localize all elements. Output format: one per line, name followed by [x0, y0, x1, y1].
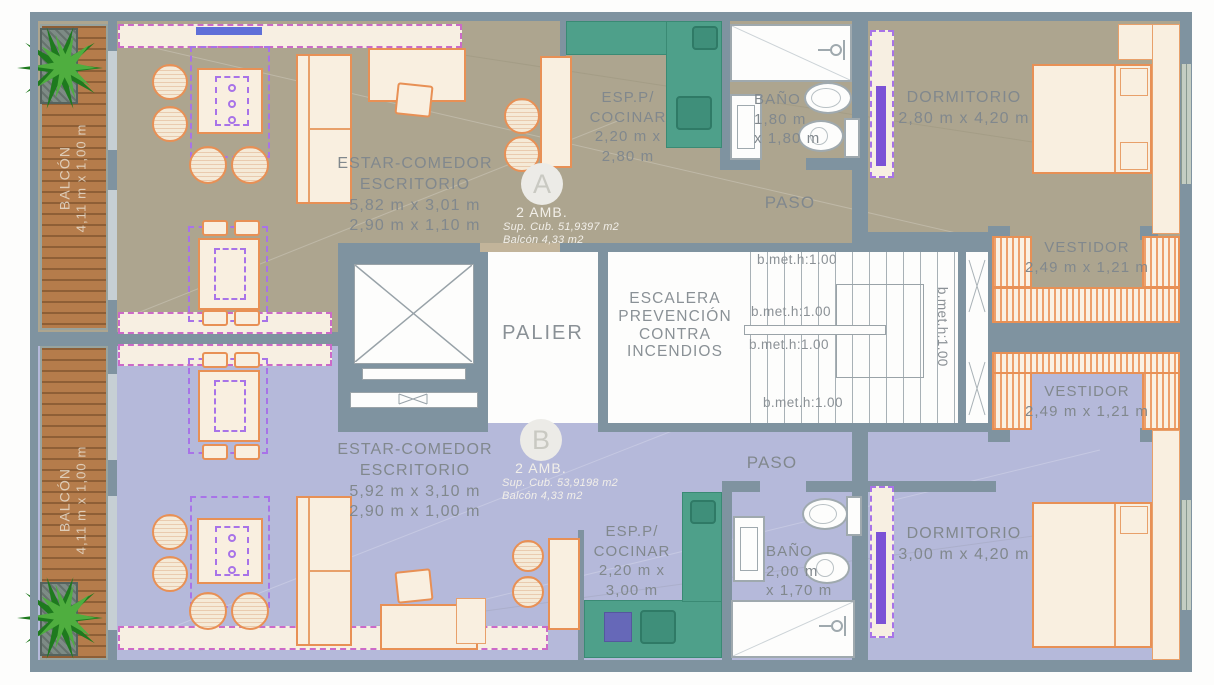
chair — [234, 352, 260, 368]
table-dot — [228, 84, 236, 92]
room-name: ESP.P/ — [572, 88, 684, 108]
bed-line — [1114, 66, 1116, 172]
room-dim: 2,20 m x — [582, 561, 682, 581]
duct — [350, 392, 478, 408]
room-dim: 3,00 m x 4,20 m — [880, 545, 1048, 566]
room-name: ESCRITORIO — [330, 461, 500, 482]
vanity-basin — [740, 527, 758, 571]
room-label-escalera: ESCALERA PREVENCIÓN CONTRA INCENDIOS — [600, 290, 750, 361]
room-label-paso-a: PASO — [750, 192, 830, 214]
window-blue-marker — [196, 27, 262, 35]
wall-segment — [108, 300, 117, 332]
counter-desk-b — [548, 538, 580, 630]
unit-badge-b: B — [520, 419, 562, 461]
room-name: BALCÓN — [55, 446, 73, 555]
bed-line — [1114, 504, 1116, 646]
closet-strip-right-b — [1152, 430, 1180, 660]
table-dot — [228, 550, 236, 558]
side-table-b — [456, 598, 486, 644]
kitchen-sink-a — [692, 26, 718, 50]
wall-segment — [108, 630, 117, 662]
window-right-a — [1181, 64, 1191, 184]
room-dim: 3,00 m — [582, 581, 682, 601]
wall-segment — [108, 150, 117, 190]
pillow — [1120, 68, 1148, 96]
stair-handrail — [744, 325, 886, 335]
room-dim: 2,90 m x 1,10 m — [330, 216, 500, 237]
stool — [512, 540, 544, 572]
table-dot — [228, 100, 236, 108]
unit-type-a: 2 AMB. — [506, 203, 578, 221]
desk-chair-b — [394, 568, 433, 604]
sofa-back — [298, 56, 310, 202]
vanity-b — [733, 516, 765, 582]
elevator-door — [362, 368, 466, 380]
window-right-b — [1181, 500, 1191, 610]
cistern-b — [846, 496, 862, 536]
room-name: DORMITORIO — [880, 524, 1048, 545]
room-dim: 2,49 m x 1,21 m — [1014, 258, 1160, 278]
sofa-cushion-line — [310, 570, 350, 572]
wall-dorm-a-bottom — [866, 232, 996, 243]
table-inner — [214, 248, 246, 300]
stair-door-strip — [966, 252, 988, 423]
wall-outer-top — [30, 12, 1180, 21]
stair-mark-vertical: b.met.h:1.00 — [933, 277, 951, 377]
table-inner — [214, 380, 246, 432]
stair-mark: b.met.h:1.00 — [751, 303, 863, 321]
chair — [152, 556, 188, 592]
room-label-bano-a: BAÑO 1,80 m x 1,80 m — [754, 90, 864, 149]
room-label-palier: PALIER — [496, 320, 590, 346]
room-label-dormitorio-a: DORMITORIO 2,80 m x 4,20 m — [880, 88, 1048, 130]
room-name: COCINAR — [582, 542, 682, 562]
window-balcony-b — [108, 344, 117, 662]
room-name: DORMITORIO — [880, 88, 1048, 109]
counter-desk-a — [540, 56, 572, 168]
toilet-b — [802, 498, 848, 530]
wall-outer-bottom — [30, 660, 1180, 672]
chair — [152, 64, 188, 100]
chair — [152, 514, 188, 550]
kitchen-stove-b — [640, 610, 676, 644]
kitchen-sink-b — [690, 500, 716, 524]
vanity-basin — [737, 105, 755, 149]
room-label-balcon-a: BALCÓN 4,11 m x 1,00 m — [55, 124, 90, 233]
table-dot — [228, 534, 236, 542]
room-name: BAÑO — [766, 542, 876, 562]
kitchen-appliance-b — [604, 612, 632, 642]
duct-bowtie-icon — [351, 393, 475, 405]
room-label-vestidor-b: VESTIDOR 2,49 m x 1,21 m — [1014, 382, 1160, 421]
wall-stairs-right — [958, 252, 966, 423]
room-dim: 2,00 m — [766, 562, 876, 582]
room-name: BALCÓN — [55, 124, 73, 233]
wall-segment — [108, 460, 117, 496]
room-label-estar-b: ESTAR-COMEDOR ESCRITORIO 5,92 m x 3,10 m… — [330, 440, 500, 523]
sofa-cushion-line — [310, 128, 350, 130]
chair — [234, 220, 260, 236]
chair — [152, 106, 188, 142]
room-label-cocina-a: ESP.P/ COCINAR 2,20 m x 2,80 m — [572, 88, 684, 166]
room-dim: 4,11 m x 1,00 m — [74, 446, 91, 555]
chair — [234, 444, 260, 460]
chair — [234, 310, 260, 326]
room-label-estar-a: ESTAR-COMEDOR ESCRITORIO 5,82 m x 3,01 m… — [330, 154, 500, 237]
room-dim: 1,80 m — [754, 110, 864, 130]
wall-segment — [108, 344, 117, 374]
room-name: COCINAR — [572, 108, 684, 128]
room-dim: x 1,80 m — [754, 129, 864, 149]
room-label-bano-b: BAÑO 2,00 m x 1,70 m — [766, 542, 876, 601]
chair — [189, 592, 227, 630]
room-dim: 2,80 m x 4,20 m — [880, 109, 1048, 130]
room-name: PREVENCIÓN — [600, 308, 750, 326]
unit-sup-balcon-a: Balcón 4,33 m2 — [503, 233, 633, 247]
room-name: INCENDIOS — [600, 343, 750, 361]
chair — [202, 220, 228, 236]
room-label-balcon-b: BALCÓN 4,11 m x 1,00 m — [55, 446, 90, 555]
room-name: VESTIDOR — [1014, 238, 1160, 258]
room-dim: 2,90 m x 1,00 m — [330, 502, 500, 523]
unit-type-b: 2 AMB. — [505, 459, 577, 477]
pillow — [1120, 142, 1148, 170]
room-dim: 5,92 m x 3,10 m — [330, 482, 500, 503]
chair — [231, 146, 269, 184]
closet-hatch — [992, 352, 1180, 374]
room-label-cocina-b: ESP.P/ COCINAR 2,20 m x 3,00 m — [582, 522, 682, 600]
chair — [202, 310, 228, 326]
shower-head-icon — [732, 26, 850, 80]
toilet-bowl — [809, 504, 837, 524]
room-label-paso-b: PASO — [732, 452, 812, 474]
stair-mark: b.met.h:1.00 — [763, 394, 875, 412]
room-dim: 2,20 m x — [572, 127, 684, 147]
room-name: VESTIDOR — [1014, 382, 1160, 402]
plant-icon — [14, 22, 106, 114]
shower-b — [731, 600, 855, 658]
pillow — [1120, 506, 1148, 534]
room-name: CONTRA — [600, 326, 750, 344]
stool — [512, 576, 544, 608]
wall-segment — [108, 21, 117, 51]
chair — [189, 146, 227, 184]
room-dim: 5,82 m x 3,01 m — [330, 196, 500, 217]
room-name: ESCALERA — [600, 290, 750, 308]
floor-plan: ESTAR-COMEDOR ESCRITORIO 5,82 m x 3,01 m… — [0, 0, 1214, 685]
room-name: ESTAR-COMEDOR — [330, 154, 500, 175]
chair — [202, 352, 228, 368]
unit-sup-balcon-b: Balcón 4,33 m2 — [502, 489, 632, 503]
sofa-back — [298, 498, 310, 644]
window-band — [118, 24, 462, 48]
room-dim: 2,80 m — [572, 147, 684, 167]
closet-hatch — [992, 287, 1180, 323]
closet-strip-right-a — [1152, 24, 1180, 234]
room-label-dormitorio-b: DORMITORIO 3,00 m x 4,20 m — [880, 524, 1048, 566]
stair-mark: b.met.h:1.00 — [749, 336, 861, 354]
room-dim: 4,11 m x 1,00 m — [74, 124, 91, 233]
unit-badge-a: A — [521, 163, 563, 205]
table-dot — [228, 116, 236, 124]
plant-icon — [14, 572, 106, 664]
shower-a — [730, 24, 852, 82]
room-dim: x 1,70 m — [766, 581, 876, 601]
wall-bath-b-top — [722, 481, 760, 492]
stool — [504, 98, 540, 134]
room-name: BAÑO — [754, 90, 864, 110]
room-name: ESP.P/ — [582, 522, 682, 542]
chair — [231, 592, 269, 630]
elevator-x-icon — [355, 265, 472, 362]
table-dot — [228, 566, 236, 574]
wall-vestidor-mid — [992, 322, 1180, 352]
door-marks-icon — [966, 252, 988, 423]
room-name: ESCRITORIO — [330, 175, 500, 196]
elevator-shaft — [354, 264, 474, 364]
desk-chair-a — [394, 82, 433, 118]
chair — [202, 444, 228, 460]
shower-head-icon — [733, 602, 853, 656]
stair-mark: b.met.h:1.00 — [757, 251, 869, 269]
room-name: ESTAR-COMEDOR — [330, 440, 500, 461]
room-label-vestidor-a: VESTIDOR 2,49 m x 1,21 m — [1014, 238, 1160, 277]
room-dim: 2,49 m x 1,21 m — [1014, 402, 1160, 422]
